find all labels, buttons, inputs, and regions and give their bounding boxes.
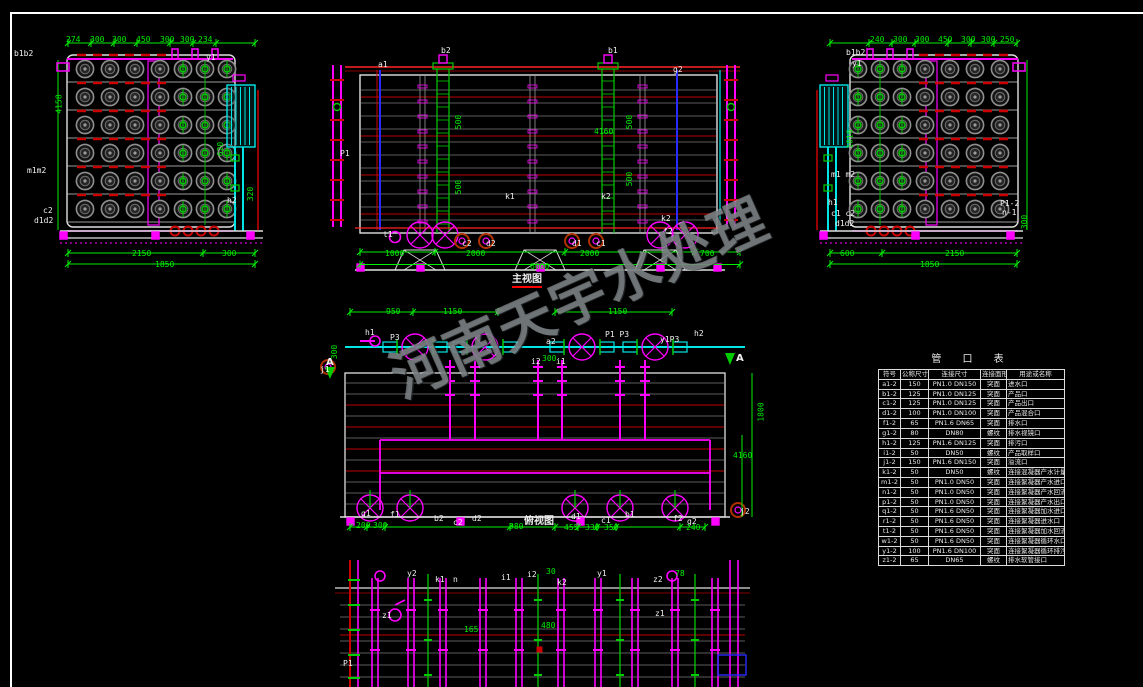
cad-label-plan-P1 P3: P1 P3 (605, 331, 629, 339)
cad-label-right_end-600: 600 (840, 250, 854, 258)
left-end-view (55, 35, 270, 280)
cad-label-plan-j1: j1 (320, 366, 330, 374)
left-end-view-linework (55, 35, 270, 280)
cad-label-right_end-b1b2: b1b2 (846, 49, 865, 57)
cad-label-left_end-2150: 2150 (132, 250, 151, 258)
cad-label-front-c2: c2 (462, 240, 472, 248)
cad-label-left_end-300: 300 (160, 36, 174, 44)
cad-label-partial-480: 480 (541, 622, 555, 630)
cad-label-partial-78: 78 (675, 570, 685, 578)
cad-label-front-主视图: 主视图 (512, 275, 542, 288)
cad-label-partial-y2: y2 (407, 570, 417, 578)
cad-label-right_end-300: 300 (915, 36, 929, 44)
cad-label-plan-c2: c2 (453, 519, 463, 527)
cad-label-front-k1: k1 (505, 193, 515, 201)
cad-label-right_end-y1: y1 (852, 60, 862, 68)
port-row: j1-2150PN1.6 DN150突面溢流口 (879, 458, 1065, 468)
cad-label-left_end-b1b2: b1b2 (14, 50, 33, 58)
cad-label-front-a1: a1 (378, 61, 388, 69)
cad-label-front-f2: f2 (663, 228, 673, 236)
cad-label-right_end-450: 450 (938, 36, 952, 44)
cad-label-front-1000: 1000 (385, 250, 404, 258)
cad-label-right_end-240: 240 (870, 36, 884, 44)
right-end-view-linework (815, 35, 1030, 280)
port-row: p1-250PN1.0 DN50突面连接絮凝器产水出口 (879, 497, 1065, 507)
cad-label-plan-950: 950 (386, 308, 400, 316)
port-row: f1-265PN1.6 DN65突面排水口 (879, 419, 1065, 429)
cad-label-front-4160: 4160 (594, 128, 613, 136)
port-table-title: 管 口 表 (878, 350, 1066, 365)
cad-label-front-2000: 2000 (466, 250, 485, 258)
port-table-header: 符号公称尺寸连接尺寸连接面形式用途或名称 (879, 370, 1065, 380)
cad-label-plan-f2: f2 (673, 515, 683, 523)
cad-label-left_end-1850: 1850 (155, 261, 174, 269)
cad-label-left_end-274: 274 (66, 36, 80, 44)
cad-label-right_end-d1d2: d1d2 (835, 220, 854, 228)
sheet-border-top (10, 12, 1143, 14)
cad-label-right_end-300: 300 (1021, 215, 1029, 229)
cad-label-right_end-n-1: n-1 (1002, 209, 1016, 217)
cad-label-partial-z1: z1 (382, 612, 392, 620)
plan-view-linework (320, 305, 765, 540)
cad-label-left_end-620: 620 (217, 142, 225, 156)
cad-label-front-500: 500 (626, 172, 634, 186)
port-row: b1-2125PN1.0 DN125突面产品口 (879, 389, 1065, 399)
port-row: h1-2125PN1.6 DN125突面排污口 (879, 438, 1065, 448)
cad-label-front-d1: d1 (572, 240, 582, 248)
port-table-grid: 符号公称尺寸连接尺寸连接面形式用途或名称a1-2150PN1.0 DN150突面… (878, 369, 1065, 566)
cad-label-plan-1150: 1150 (608, 308, 627, 316)
port-row: d1-2100PN1.0 DN100突面产品混合口 (879, 409, 1065, 419)
cad-label-right_end-1016: 1016 (847, 129, 855, 148)
port-row: c1-2125PN1.0 DN125突面产品出口 (879, 399, 1065, 409)
cad-label-plan-455: 455 (564, 524, 578, 532)
cad-label-front-k2: k2 (661, 215, 671, 223)
cad-label-front-500: 500 (626, 115, 634, 129)
cad-label-front-d2: d2 (486, 240, 496, 248)
cad-label-front-c1: c1 (596, 240, 606, 248)
cad-label-plan-4160: 4160 (733, 452, 752, 460)
cad-label-plan-200: 200 (356, 522, 370, 530)
cad-label-left_end-4158: 4158 (56, 94, 64, 113)
cad-label-plan-y1P3: y1P3 (660, 336, 679, 344)
cad-label-left_end-c2: c2 (43, 207, 53, 215)
cad-label-right_end-300: 300 (961, 36, 975, 44)
cad-label-partial-P1: P1 (343, 660, 353, 668)
port-row: y1-2100PN1.6 DN100突面连接絮凝器循环排污口 (879, 546, 1065, 556)
cad-label-partial-165: 165 (464, 626, 478, 634)
cad-label-plan-1800: 1800 (758, 402, 766, 421)
cad-label-plan-j2: j2 (740, 508, 750, 516)
cad-label-partial-z2: z2 (653, 576, 663, 584)
cad-label-front-500: 500 (455, 115, 463, 129)
cad-label-partial-k2: k2 (557, 579, 567, 587)
cad-label-partial-n: n (453, 576, 458, 584)
port-row: g1-280DN80螺纹排水视镜口 (879, 428, 1065, 438)
cad-label-plan-980: 980 (509, 523, 523, 531)
cad-label-right_end-1850: 1850 (920, 261, 939, 269)
cad-label-left_end-320: 320 (247, 187, 255, 201)
cad-label-partial-i1: i1 (501, 574, 511, 582)
cad-label-partial-y1: y1 (597, 570, 607, 578)
cad-label-plan-d1: d1 (571, 513, 581, 521)
cad-label-plan-1150: 1150 (443, 308, 462, 316)
cad-label-front-b2: b2 (441, 47, 451, 55)
cad-label-left_end-300: 300 (112, 36, 126, 44)
plan-view (320, 305, 765, 540)
cad-label-front-500: 500 (455, 180, 463, 194)
cad-label-front-t1: t1 (383, 231, 393, 239)
port-row: m1-250PN1.0 DN50突面连接絮凝器产水进口 (879, 477, 1065, 487)
cad-label-plan-330: 330 (585, 524, 599, 532)
cad-label-front-g2: g2 (673, 66, 683, 74)
port-row: a1-2150PN1.0 DN150突面进水口 (879, 379, 1065, 389)
partial-view-linework (320, 560, 760, 687)
cad-label-right_end-300: 300 (893, 36, 907, 44)
sheet-border-left (10, 12, 12, 687)
cad-label-partial-z1: z1 (655, 610, 665, 618)
cad-label-front-6000: 6000 (530, 263, 549, 271)
cad-label-right_end-P1-2: P1-2 (1000, 200, 1019, 208)
port-table: 管 口 表 符号公称尺寸连接尺寸连接面形式用途或名称a1-2150PN1.0 D… (878, 350, 1066, 566)
cad-label-plan-g1: g1 (361, 510, 371, 518)
port-row: i1-250DN50螺纹产品取样口 (879, 448, 1065, 458)
partial-view (320, 560, 760, 687)
cad-label-plan-240: 240 (686, 524, 700, 532)
cad-label-partial-k1: k1 (435, 576, 445, 584)
cad-label-plan-300: 300 (373, 522, 387, 530)
cad-label-plan-A: A (736, 354, 744, 364)
cad-label-right_end-2150: 2150 (945, 250, 964, 258)
cad-label-plan-h1: h1 (365, 329, 375, 337)
cad-label-front-P1: P1 (340, 150, 350, 158)
port-row: k1-250DN50螺纹连接混凝器产水计量口 (879, 468, 1065, 478)
cad-label-partial-i2: i2 (527, 571, 537, 579)
cad-label-plan-d2: d2 (472, 515, 482, 523)
cad-label-left_end-y1: y1 (206, 54, 216, 62)
port-row: w1-250PN1.6 DN50突面连接絮凝器循环水口 (879, 536, 1065, 546)
cad-label-right_end-250: 250 (1000, 36, 1014, 44)
cad-label-front-k2: k2 (601, 193, 611, 201)
cad-label-plan-a2: a2 (546, 338, 556, 346)
cad-label-plan-i2: i2 (531, 358, 541, 366)
cad-label-left_end-m1m2: m1m2 (27, 167, 46, 175)
cad-label-left_end-450: 450 (136, 36, 150, 44)
cad-label-left_end-300: 300 (222, 250, 236, 258)
cad-label-front-b1: b1 (608, 47, 618, 55)
cad-label-plan-300: 300 (331, 345, 339, 359)
cad-label-plan-300: 300 (542, 355, 556, 363)
cad-label-left_end-234: 234 (198, 36, 212, 44)
cad-label-plan-i1: i1 (556, 358, 566, 366)
cad-label-plan-h2: h2 (694, 330, 704, 338)
port-row: z1-265DN65螺纹排水软管接口 (879, 556, 1065, 566)
cad-label-left_end-300: 300 (180, 36, 194, 44)
cad-label-left_end-d1d2: d1d2 (34, 217, 53, 225)
cad-label-plan-b2: b2 (434, 515, 444, 523)
cad-label-partial-30: 30 (546, 568, 556, 576)
cad-label-left_end-h2: h2 (227, 197, 237, 205)
cad-label-left_end-300: 300 (90, 36, 104, 44)
port-row: q1-250PN1.6 DN50突面连接絮凝器加水进口 (879, 507, 1065, 517)
cad-label-right_end-h1: h1 (828, 199, 838, 207)
cad-label-right_end-c1 c2: c1 c2 (831, 210, 855, 218)
cad-label-front-700: 700 (700, 250, 714, 258)
cad-label-plan-俯视图: 俯视图 (524, 517, 554, 527)
cad-label-front-2000: 2000 (580, 250, 599, 258)
cad-label-plan-350: 350 (604, 524, 618, 532)
cad-label-plan-P3: P3 (390, 334, 400, 342)
cad-label-plan-b1: b1 (625, 511, 635, 519)
cad-sheet: 管 口 表 符号公称尺寸连接尺寸连接面形式用途或名称a1-2150PN1.0 D… (0, 0, 1143, 687)
port-row: r1-250PN1.6 DN50突面连接絮凝器进水口 (879, 517, 1065, 527)
port-row: t1-250PN1.6 DN50突面连接絮凝器加水回流口 (879, 527, 1065, 537)
cad-label-right_end-m1 m2: m1 m2 (831, 171, 855, 179)
cad-label-plan-f1: f1 (390, 511, 400, 519)
cad-label-right_end-300: 300 (981, 36, 995, 44)
right-end-view (815, 35, 1030, 280)
port-row: n1-250PN1.0 DN50突面连接絮凝器产水回流口 (879, 487, 1065, 497)
